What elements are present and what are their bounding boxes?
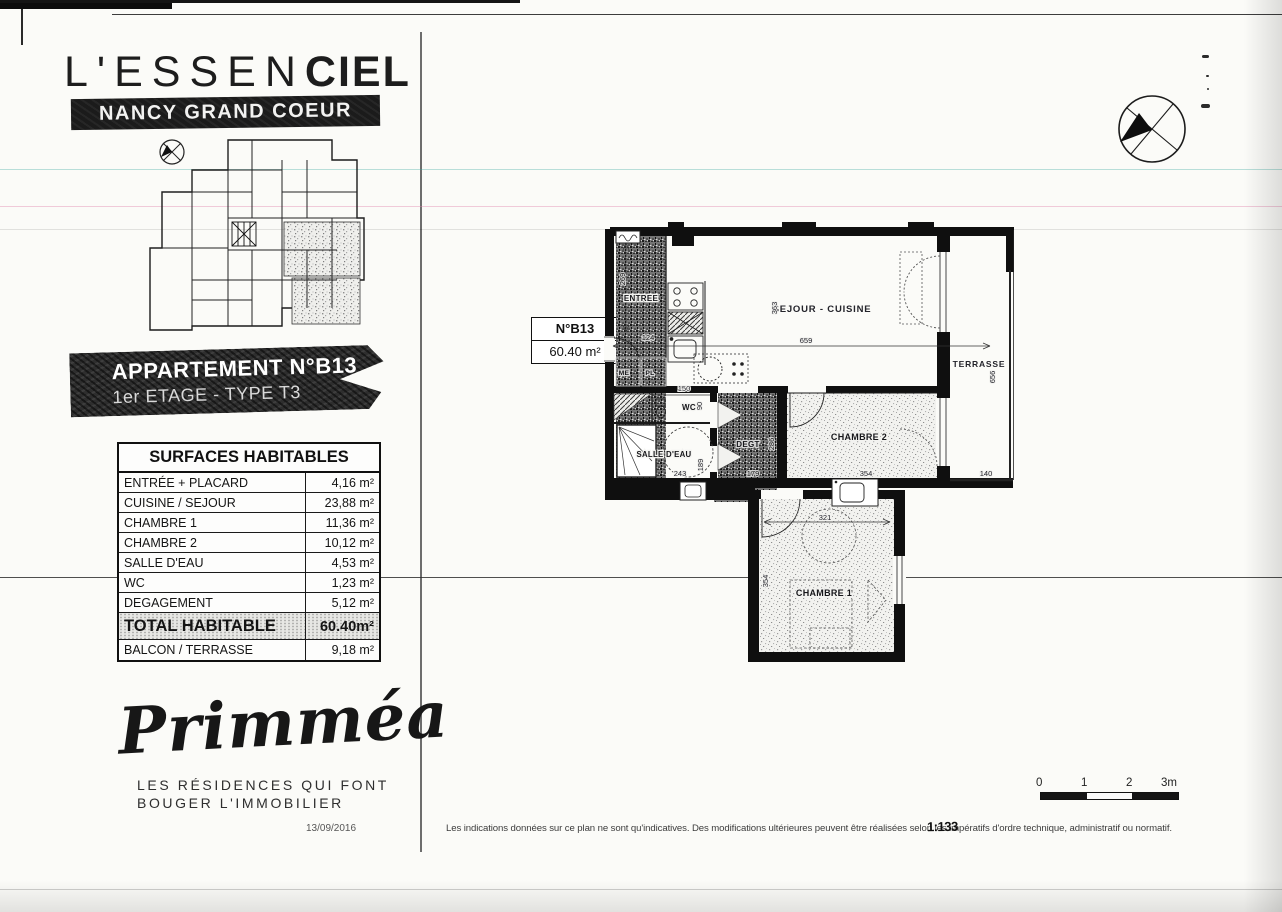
dim-chambre2-width: 354 [860, 469, 873, 478]
scale-segment [1041, 793, 1087, 799]
row-value: 1,23 m² [305, 573, 379, 592]
row-label: SALLE D'EAU [119, 553, 305, 572]
room-label-entree: ENTREE [624, 294, 659, 303]
brand-tagline-line2: BOUGER L'IMMOBILIER [137, 794, 389, 812]
row-label: BALCON / TERRASSE [119, 640, 305, 660]
total-label: TOTAL HABITABLE [119, 613, 305, 639]
row-value: 10,12 m² [305, 533, 379, 552]
dim-terrasse-width: 140 [980, 469, 993, 478]
plan-date: 13/09/2016 [306, 823, 356, 834]
row-label: CHAMBRE 1 [119, 513, 305, 532]
terrace-railing [950, 230, 1014, 480]
scale-tick-1: 1 [1081, 777, 1087, 789]
table-row: WC 1,23 m² [119, 573, 379, 593]
scan-speck [1201, 104, 1210, 108]
dim-degagement-height: 286 [767, 438, 776, 451]
electrical-box-icon [616, 231, 640, 243]
disclaimer-text: Les indications données sur ce plan ne s… [446, 823, 1172, 834]
room-label-wc: WC [682, 403, 696, 412]
surfaces-table: SURFACES HABITABLES ENTRÉE + PLACARD 4,1… [117, 442, 381, 662]
row-value: 11,36 m² [305, 513, 379, 532]
scale-tick-0: 0 [1036, 777, 1042, 789]
key-plan-unit-highlight [292, 278, 360, 324]
kitchen-fixtures [668, 283, 748, 383]
closet-label-me: ME [619, 370, 630, 377]
table-row: DEGAGEMENT 5,12 m² [119, 593, 379, 613]
dim-entree-height: 269 [618, 273, 627, 286]
scan-artifact-top-line [112, 14, 1282, 15]
brand-tagline: LES RÉSIDENCES QUI FONT BOUGER L'IMMOBIL… [137, 776, 389, 812]
key-plan-compass-icon [160, 140, 184, 164]
row-label: ENTRÉE + PLACARD [119, 473, 305, 492]
row-label: CHAMBRE 2 [119, 533, 305, 552]
dim-degagement-width: 179 [747, 469, 760, 478]
room-label-degagement: DEGT [736, 440, 759, 449]
dim-wc-width: 150 [678, 384, 691, 393]
room-label-chambre1: CHAMBRE 1 [796, 588, 852, 598]
table-row: CHAMBRE 1 11,36 m² [119, 513, 379, 533]
dim-chambre1-height: 354 [761, 575, 770, 588]
scan-artifact-top-edge [0, 0, 520, 3]
table-total-row: TOTAL HABITABLE 60.40m² [119, 613, 379, 640]
scan-artifact-bottom-line [0, 889, 1282, 890]
scan-speck [1206, 75, 1209, 77]
closet-label-pl: PL [645, 370, 654, 377]
key-plan [132, 130, 367, 338]
scale-segment [1087, 793, 1133, 799]
scale-tick-2: 2 [1126, 777, 1132, 789]
location-banner: NANCY GRAND COEUR [71, 95, 380, 130]
floor-plan: ENTREE SEJOUR - CUISINE TERRASSE WC SALL… [505, 222, 1035, 672]
row-value: 9,18 m² [305, 640, 379, 660]
row-label: WC [119, 573, 305, 592]
dim-terrasse-height: 656 [988, 371, 997, 384]
scan-artifact-left-tick [21, 9, 23, 45]
dim-chambre1-width: 321 [819, 513, 832, 522]
row-value: 4,53 m² [305, 553, 379, 572]
row-value: 4,16 m² [305, 473, 379, 492]
apartment-banner: APPARTEMENT N°B13 1er ETAGE - TYPE T3 [69, 345, 385, 418]
dim-salle-eau-width: 243 [674, 469, 687, 478]
project-title: L'ESSENCIEL [64, 48, 411, 97]
key-plan-interior-walls [150, 140, 364, 330]
table-row: ENTRÉE + PLACARD 4,16 m² [119, 473, 379, 493]
table-row: CUISINE / SEJOUR 23,88 m² [119, 493, 379, 513]
north-compass-icon [1105, 85, 1200, 175]
scale-segment [1132, 793, 1178, 799]
total-value: 60.40m² [305, 613, 379, 639]
scale-stamp-overprint: 1:133 [927, 819, 958, 835]
scale-tick-3: 3m [1161, 777, 1177, 789]
row-label: DEGAGEMENT [119, 593, 305, 612]
brand-logo: Primméa [116, 677, 450, 769]
row-value: 23,88 m² [305, 493, 379, 512]
project-title-regular: L'ESSEN [64, 48, 305, 96]
surfaces-table-header: SURFACES HABITABLES [119, 444, 379, 473]
room-label-sejour-cuisine: SEJOUR - CUISINE [773, 304, 872, 315]
dim-entree-door: 124 [642, 333, 655, 342]
key-plan-stairs [232, 222, 256, 246]
table-row: SALLE D'EAU 4,53 m² [119, 553, 379, 573]
dim-sejour-width: 659 [800, 336, 813, 345]
sink-niche-icon [832, 479, 878, 506]
project-title-bold: CIEL [305, 48, 411, 96]
table-row: CHAMBRE 2 10,12 m² [119, 533, 379, 553]
dim-wc-depth: 90 [695, 402, 704, 410]
dim-sejour-height: 363 [770, 302, 779, 315]
scan-speck [1202, 55, 1209, 58]
row-label: CUISINE / SEJOUR [119, 493, 305, 512]
brand-tagline-line1: LES RÉSIDENCES QUI FONT [137, 776, 389, 794]
room-label-chambre2: CHAMBRE 2 [831, 432, 887, 442]
row-value: 5,12 m² [305, 593, 379, 612]
key-plan-unit-highlight [284, 222, 360, 276]
scan-speck [1207, 88, 1209, 90]
room-label-terrasse: TERRASSE [953, 359, 1006, 369]
scanned-floor-plan-page: L'ESSENCIEL NANCY GRAND COEUR [0, 0, 1282, 912]
scale-bar [1040, 792, 1179, 800]
table-row: BALCON / TERRASSE 9,18 m² [119, 640, 379, 660]
room-label-salle-eau: SALLE D'EAU [637, 450, 692, 459]
dim-salle-eau-depth: 189 [696, 459, 705, 472]
